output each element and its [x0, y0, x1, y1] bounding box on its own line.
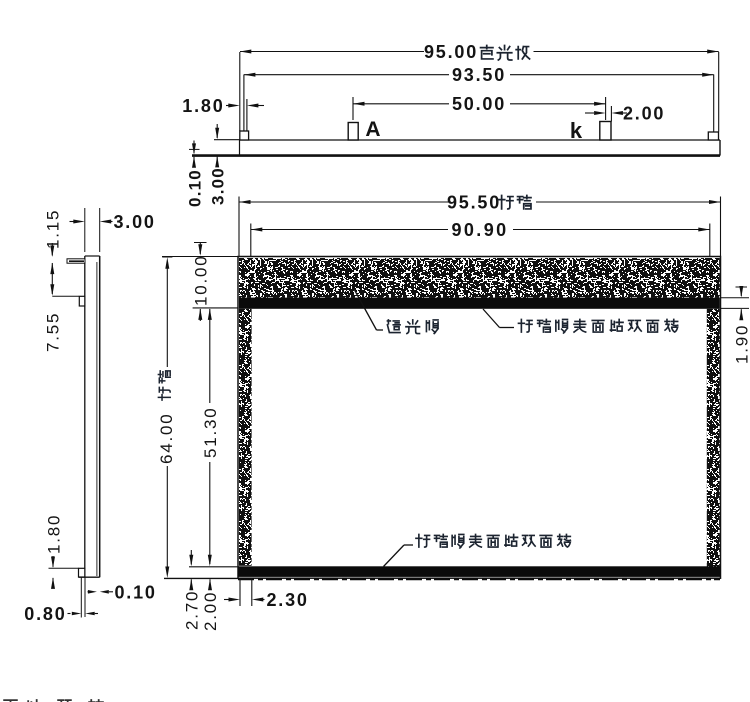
- svg-text:93.50: 93.50: [452, 65, 506, 85]
- svg-text:90.90: 90.90: [451, 220, 508, 240]
- svg-text:2.70: 2.70: [183, 590, 202, 630]
- svg-text:1.80: 1.80: [182, 96, 224, 116]
- svg-text:0.10: 0.10: [115, 583, 157, 603]
- svg-text:64.00: 64.00: [157, 412, 176, 464]
- svg-text:3.00: 3.00: [114, 212, 156, 232]
- svg-text:50.00: 50.00: [452, 94, 506, 114]
- svg-text:10.00: 10.00: [192, 254, 211, 306]
- svg-text:0.10: 0.10: [186, 169, 205, 207]
- svg-text:2.30: 2.30: [267, 590, 309, 610]
- svg-text:1.80: 1.80: [45, 514, 64, 554]
- svg-text:2.00: 2.00: [623, 104, 665, 124]
- svg-text:95.00: 95.00: [424, 42, 478, 62]
- svg-text:k: k: [570, 118, 583, 143]
- svg-text:3.00: 3.00: [209, 167, 228, 205]
- svg-text:2.00: 2.00: [201, 591, 220, 631]
- svg-text:95.50: 95.50: [447, 193, 501, 213]
- svg-text:7.55: 7.55: [44, 312, 63, 352]
- svg-text:51.30: 51.30: [201, 406, 220, 458]
- svg-text:1.15: 1.15: [44, 209, 63, 249]
- svg-text:A: A: [365, 118, 380, 141]
- svg-text:0.80: 0.80: [24, 604, 66, 624]
- svg-text:1.90: 1.90: [733, 324, 750, 364]
